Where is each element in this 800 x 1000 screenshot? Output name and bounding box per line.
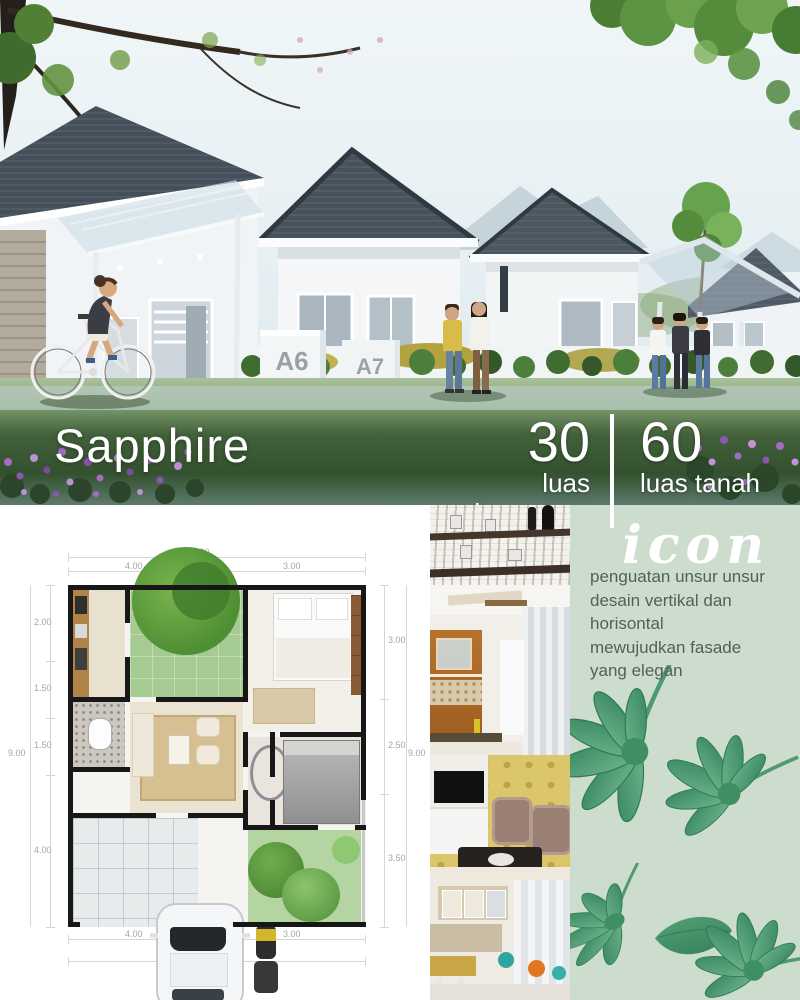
curtain xyxy=(522,607,570,755)
dim-tick xyxy=(365,935,366,944)
stove xyxy=(75,648,87,670)
countertop xyxy=(430,733,502,742)
cabinet-glass-door xyxy=(436,638,472,670)
wall xyxy=(243,825,318,830)
stat-land-area: 60 luas tanah xyxy=(640,416,790,498)
tray xyxy=(488,853,514,866)
floor-plan xyxy=(68,585,366,927)
car-mirror xyxy=(150,933,158,938)
wall xyxy=(188,813,248,818)
car-roof xyxy=(170,953,228,987)
wall-frame xyxy=(508,549,522,561)
wall xyxy=(68,767,130,772)
dim-tick xyxy=(380,699,389,700)
poster-page: A6 A7 xyxy=(0,0,800,1000)
monstera-leaf-icon xyxy=(570,863,675,987)
pillow xyxy=(278,598,312,620)
dim-tick xyxy=(365,567,366,576)
divider-line xyxy=(610,414,614,528)
interior-photo-livingroom xyxy=(430,755,570,880)
dim-tick xyxy=(46,661,55,662)
stat-land-area-value: 60 xyxy=(640,416,790,468)
dim-left-a: 2.00 xyxy=(34,617,52,627)
dim-left-total: 9.00 xyxy=(8,748,26,758)
interior-photo-dining xyxy=(430,880,570,1000)
wall xyxy=(243,732,248,767)
wall xyxy=(68,922,80,927)
dim-bottom-a: 4.00 xyxy=(125,929,143,939)
wall-frame xyxy=(460,545,472,559)
wall xyxy=(125,585,130,623)
dim-line xyxy=(30,585,31,927)
bed-1 xyxy=(273,593,353,681)
green-panel: icon penguatan unsur unsur desain vertik… xyxy=(570,505,800,1000)
cabinet-door xyxy=(464,890,484,918)
dim-line xyxy=(384,585,385,927)
counter xyxy=(430,924,502,952)
wardrobe xyxy=(351,595,361,695)
garden-fence xyxy=(362,800,365,927)
stat-land-area-label: luas tanah xyxy=(640,468,790,498)
moto-rear xyxy=(254,961,278,993)
dim-right-b: 2.50 xyxy=(388,740,406,750)
bottle xyxy=(474,719,480,733)
bedroom-rug xyxy=(253,688,315,724)
wall xyxy=(68,813,156,818)
dim-right-total: 9.00 xyxy=(408,748,426,758)
wall xyxy=(68,697,130,702)
vase xyxy=(528,507,536,531)
car-windshield xyxy=(170,927,226,951)
base-cabinet xyxy=(430,742,522,755)
dim-tick xyxy=(46,718,55,719)
monstera-leaf-icon xyxy=(570,665,713,843)
toilet xyxy=(88,718,112,750)
floorplan-panel: 7.60 4.00 3.00 2.00 1.50 1.50 4.00 9.00 … xyxy=(0,505,430,1000)
room-garden xyxy=(248,830,361,922)
courtyard-tree xyxy=(172,562,230,620)
coffee-table xyxy=(168,735,190,765)
floor xyxy=(430,867,570,880)
wall xyxy=(156,697,248,702)
floor xyxy=(430,984,570,1000)
panel-description-line: yang elegan xyxy=(590,659,790,683)
cabinet-door xyxy=(486,890,506,918)
pillow xyxy=(284,741,359,755)
dim-top-b: 3.00 xyxy=(283,561,301,571)
dim-left-c: 1.50 xyxy=(34,740,52,750)
dim-tick xyxy=(68,935,69,944)
tv xyxy=(434,771,484,803)
car xyxy=(156,903,244,1000)
window xyxy=(500,640,524,735)
sink xyxy=(75,624,87,638)
upper-cabinets xyxy=(438,886,508,920)
wall xyxy=(355,825,366,830)
wall xyxy=(280,732,366,737)
armchair xyxy=(196,717,220,737)
wall xyxy=(361,585,366,800)
wall xyxy=(125,657,130,697)
room-bedroom-2 xyxy=(248,737,361,825)
garden-bush xyxy=(332,836,360,864)
bed-2 xyxy=(283,740,360,824)
dim-tick xyxy=(380,585,389,586)
pillow xyxy=(316,598,348,620)
dim-tick xyxy=(46,927,55,928)
dim-left-d: 4.00 xyxy=(34,845,52,855)
armchair xyxy=(196,745,220,765)
bar-stool-teal xyxy=(498,952,514,968)
backsplash xyxy=(430,680,482,705)
room-bathroom xyxy=(73,702,125,767)
wall xyxy=(68,585,366,590)
panel-description-line: horisontal xyxy=(590,612,790,636)
car-rear-window xyxy=(172,989,224,1000)
dim-tick xyxy=(365,553,366,562)
wall xyxy=(243,585,248,697)
wall xyxy=(233,922,366,927)
monstera-leaf-icon xyxy=(643,712,798,866)
interior-photo-shelves xyxy=(430,505,570,585)
wall xyxy=(243,790,248,830)
cabinet-door xyxy=(442,890,462,918)
sofa xyxy=(132,713,154,777)
panel-description-line: mewujudkan fasade xyxy=(590,636,790,660)
dim-tick xyxy=(380,794,389,795)
dim-tick xyxy=(46,585,55,586)
room-courtyard xyxy=(130,590,243,697)
dim-tick xyxy=(68,957,69,966)
room-kitchen xyxy=(73,590,125,697)
panel-description-line: desain vertikal dan xyxy=(590,589,790,613)
cabinet-shelf xyxy=(430,674,482,677)
dim-line xyxy=(406,585,407,927)
dim-left-b: 1.50 xyxy=(34,683,52,693)
dim-right-c: 3.50 xyxy=(388,853,406,863)
room-bedroom-1 xyxy=(243,590,361,732)
vase xyxy=(542,505,554,532)
moto-tank xyxy=(256,929,276,941)
project-title: Sapphire xyxy=(54,418,250,473)
wall xyxy=(68,585,73,927)
dim-line xyxy=(50,585,51,927)
blanket xyxy=(276,638,350,678)
dim-right-a: 3.00 xyxy=(388,635,406,645)
wall-frame xyxy=(450,515,462,529)
table xyxy=(430,956,476,976)
dim-tick xyxy=(68,553,69,562)
panel-description: penguatan unsur unsur desain vertikal da… xyxy=(590,565,790,683)
bar-stool-orange xyxy=(528,960,545,977)
stat-building-area-value: 30 xyxy=(430,416,590,468)
monstera-leaves-illustration xyxy=(570,665,800,1000)
bar-stool-teal xyxy=(552,966,566,980)
ceiling-strip xyxy=(485,600,527,606)
dim-tick xyxy=(68,567,69,576)
wall xyxy=(270,732,275,777)
wall xyxy=(270,800,275,830)
panel-description-line: penguatan unsur unsur xyxy=(590,565,790,589)
fridge xyxy=(75,596,87,614)
dim-top-a: 4.00 xyxy=(125,561,143,571)
interior-photo-kitchen xyxy=(430,585,570,755)
house-marker-a6: A6 xyxy=(275,346,308,376)
armchair xyxy=(492,797,532,845)
house-marker-a7: A7 xyxy=(356,354,384,379)
wall-frame xyxy=(485,519,496,532)
dim-tick xyxy=(380,927,389,928)
garden-bush xyxy=(282,868,340,922)
dim-tick xyxy=(46,775,55,776)
room-living xyxy=(130,702,243,813)
dim-tick xyxy=(365,957,366,966)
